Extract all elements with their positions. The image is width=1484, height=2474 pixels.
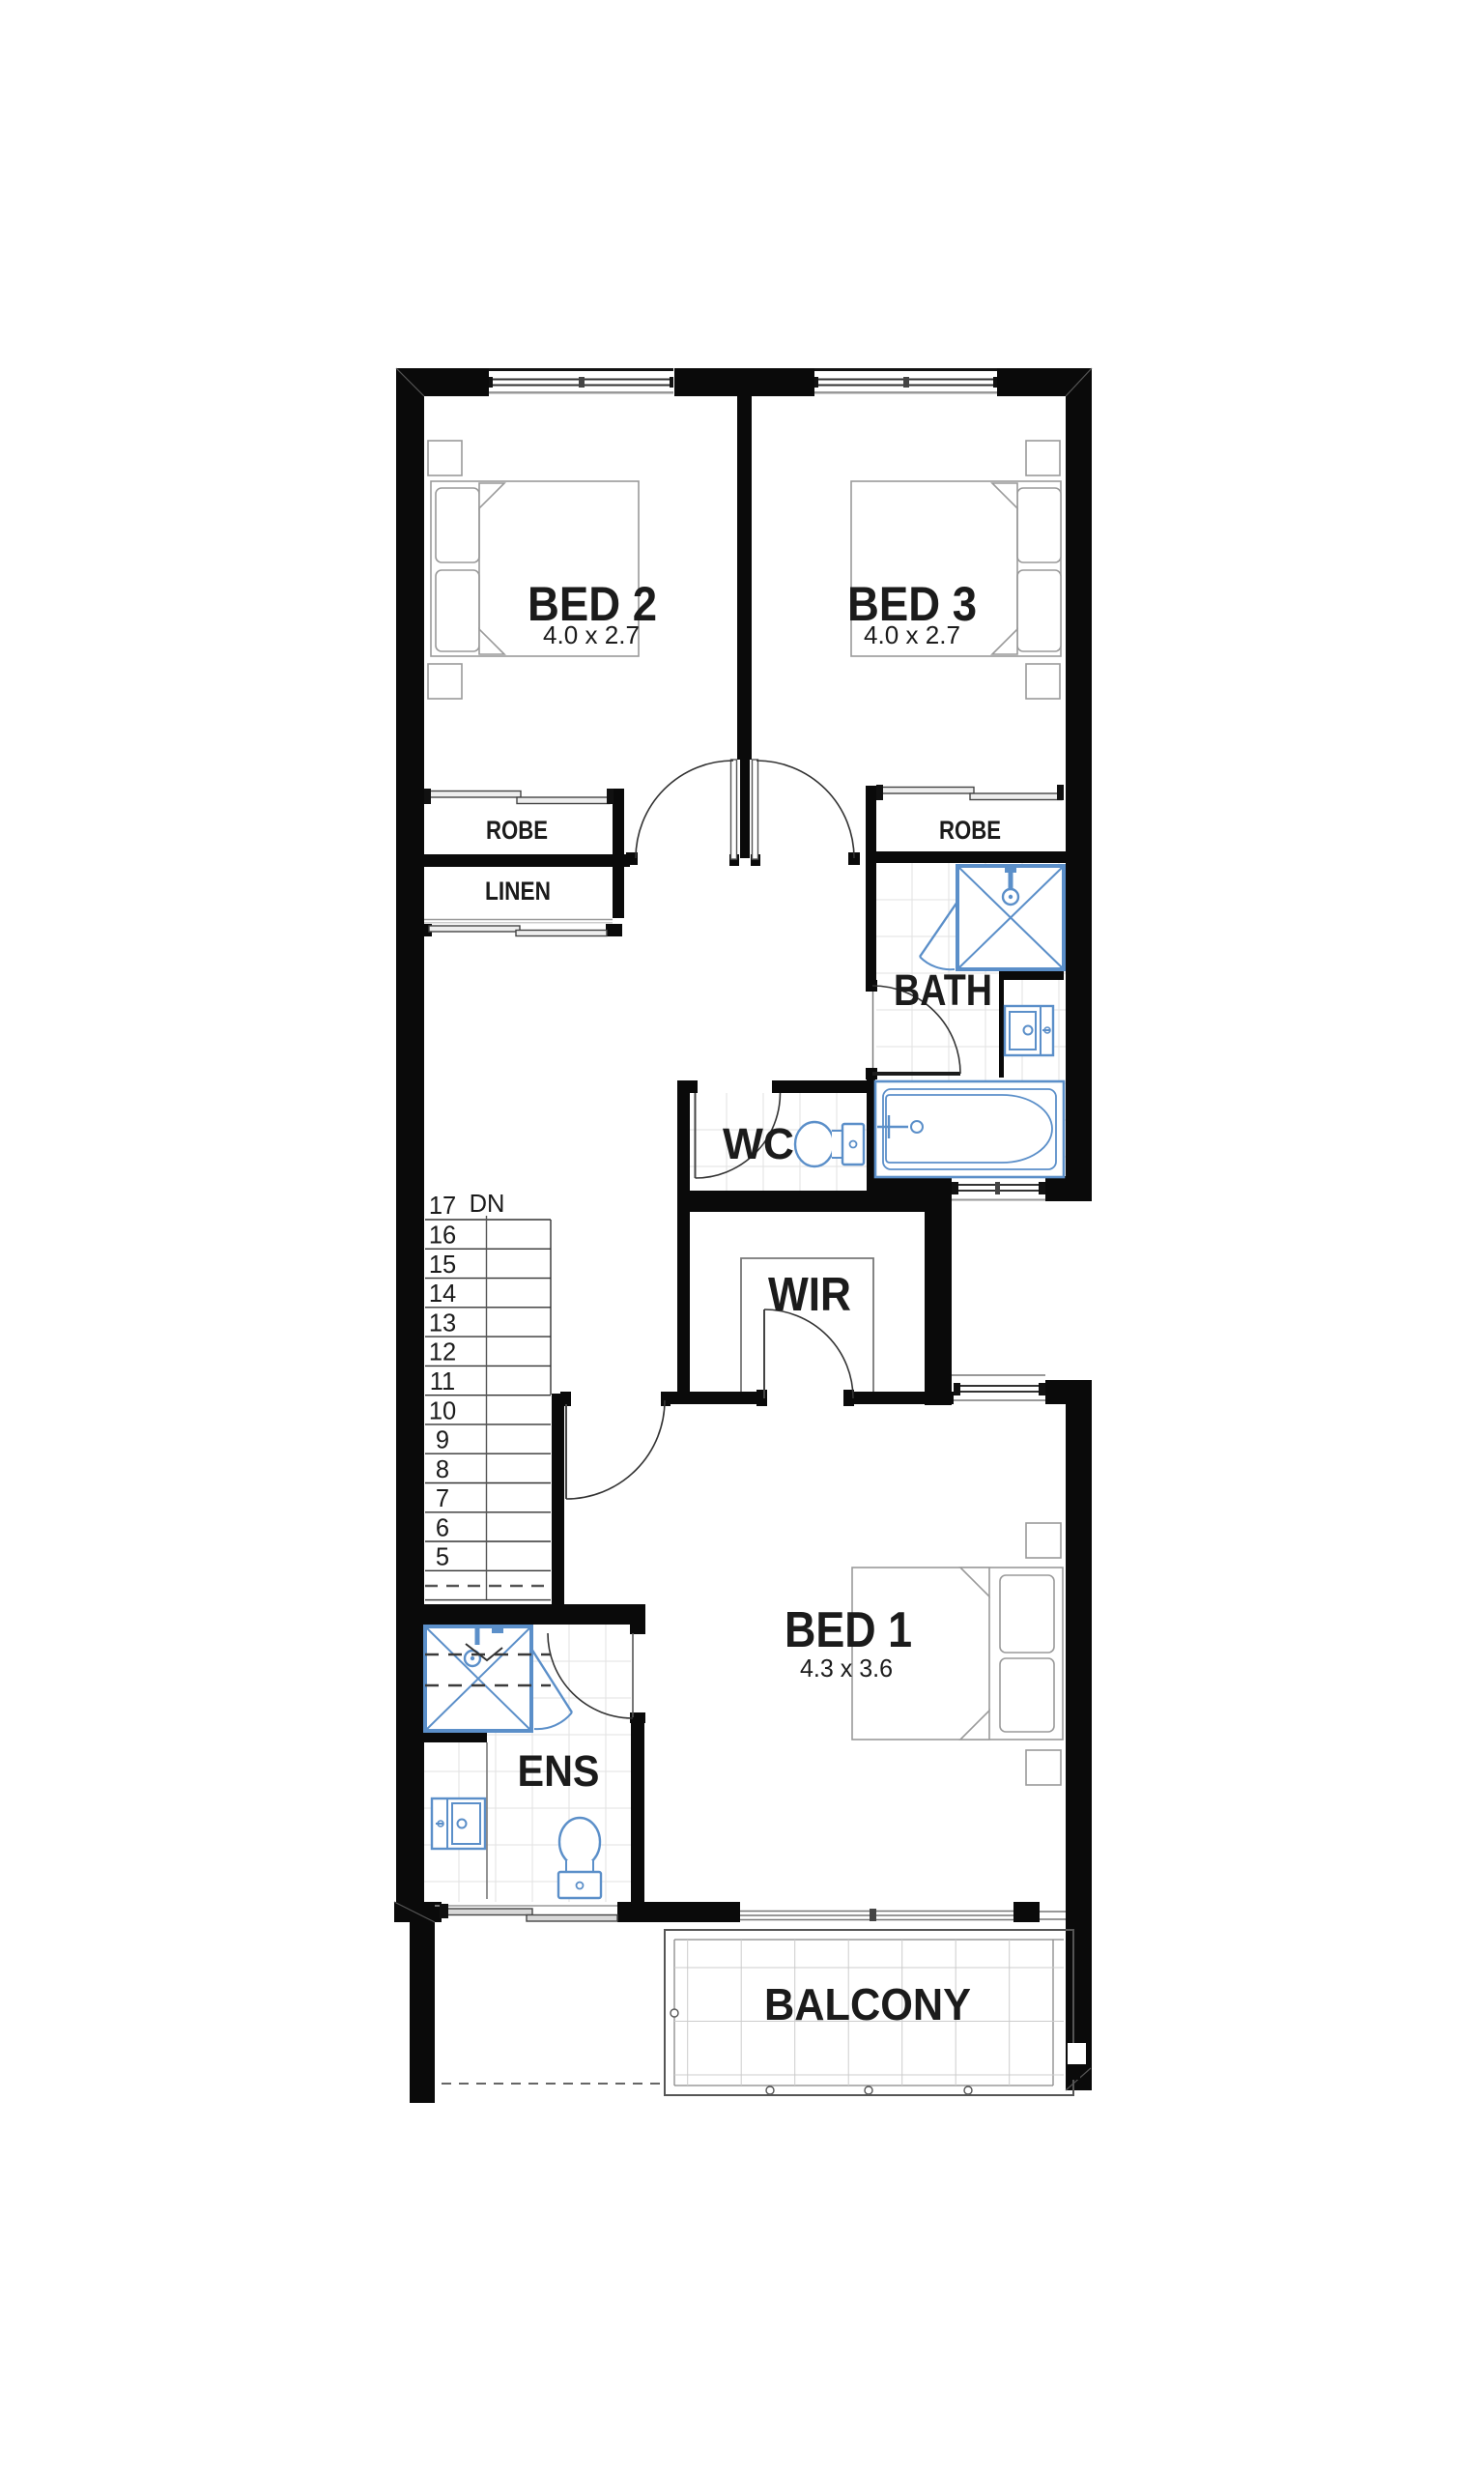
svg-text:17: 17: [429, 1193, 456, 1220]
svg-text:LINEN: LINEN: [485, 877, 551, 906]
svg-text:ROBE: ROBE: [486, 816, 548, 845]
svg-text:10: 10: [429, 1397, 456, 1424]
svg-text:WIR: WIR: [768, 1269, 851, 1321]
svg-text:5: 5: [436, 1544, 449, 1571]
svg-text:4.0 x 2.7: 4.0 x 2.7: [864, 620, 960, 649]
svg-text:WC: WC: [723, 1119, 794, 1168]
svg-text:BED 1: BED 1: [785, 1602, 912, 1658]
svg-text:16: 16: [429, 1223, 456, 1250]
svg-text:8: 8: [436, 1456, 449, 1483]
svg-text:12: 12: [429, 1339, 456, 1366]
svg-text:4.0 x 2.7: 4.0 x 2.7: [543, 620, 640, 649]
svg-text:ROBE: ROBE: [939, 816, 1001, 845]
svg-text:BALCONY: BALCONY: [764, 1979, 971, 2029]
svg-text:13: 13: [429, 1310, 456, 1338]
svg-text:ENS: ENS: [518, 1746, 600, 1796]
svg-text:11: 11: [430, 1368, 455, 1395]
svg-text:15: 15: [429, 1251, 456, 1279]
svg-text:7: 7: [436, 1485, 449, 1512]
svg-text:BATH: BATH: [894, 965, 992, 1015]
svg-text:DN: DN: [470, 1191, 505, 1218]
svg-text:9: 9: [436, 1427, 449, 1454]
svg-text:6: 6: [436, 1514, 449, 1541]
svg-text:4.3 x 3.6: 4.3 x 3.6: [800, 1654, 893, 1683]
svg-text:14: 14: [429, 1280, 456, 1308]
